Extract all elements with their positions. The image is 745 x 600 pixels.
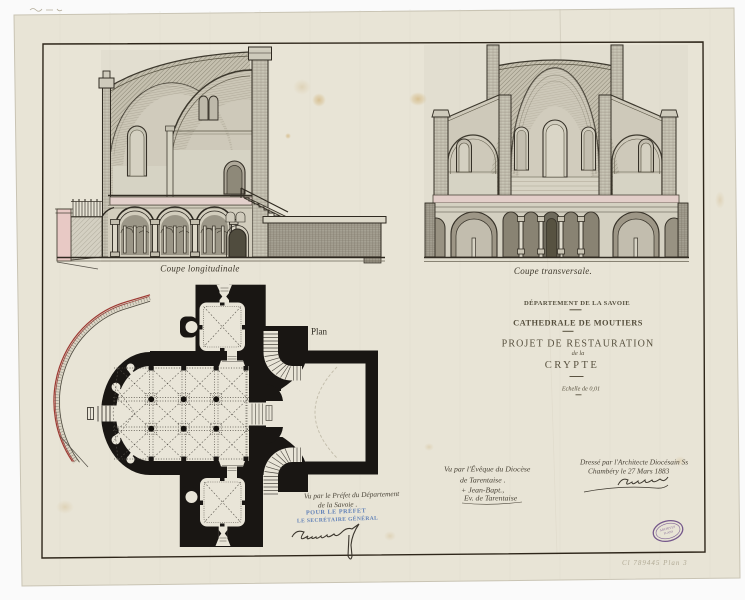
svg-text:DÉPARTEMENT DE LA SAVOIE: DÉPARTEMENT DE LA SAVOIE [524, 299, 630, 307]
svg-text:CATHEDRALE DE MOUTIERS: CATHEDRALE DE MOUTIERS [513, 319, 643, 328]
svg-text:Dressé par l'Architecte Diocés: Dressé par l'Architecte Diocésain Ss [579, 458, 688, 467]
svg-text:Echelle de 0,01: Echelle de 0,01 [561, 386, 600, 393]
svg-text:de Tarentaise .: de Tarentaise . [460, 476, 506, 485]
svg-text:de la: de la [572, 350, 585, 357]
svg-text:Coupe transversale.: Coupe transversale. [514, 266, 592, 276]
svg-text:CRYPTE: CRYPTE [545, 360, 599, 371]
svg-text:Vu par l'Évêque du Diocèse: Vu par l'Évêque du Diocèse [444, 464, 531, 474]
svg-text:Chambéry le 27 Mars 1883: Chambéry le 27 Mars 1883 [588, 467, 670, 476]
svg-text:Ev. de Tarentaise: Ev. de Tarentaise [463, 494, 518, 503]
svg-text:Plan: Plan [311, 327, 328, 337]
svg-text:Coupe longitudinale: Coupe longitudinale [160, 264, 239, 274]
svg-text:PROJET DE RESTAURATION: PROJET DE RESTAURATION [502, 339, 655, 350]
svg-text:Cl 789445 Plan 3: Cl 789445 Plan 3 [622, 559, 688, 567]
